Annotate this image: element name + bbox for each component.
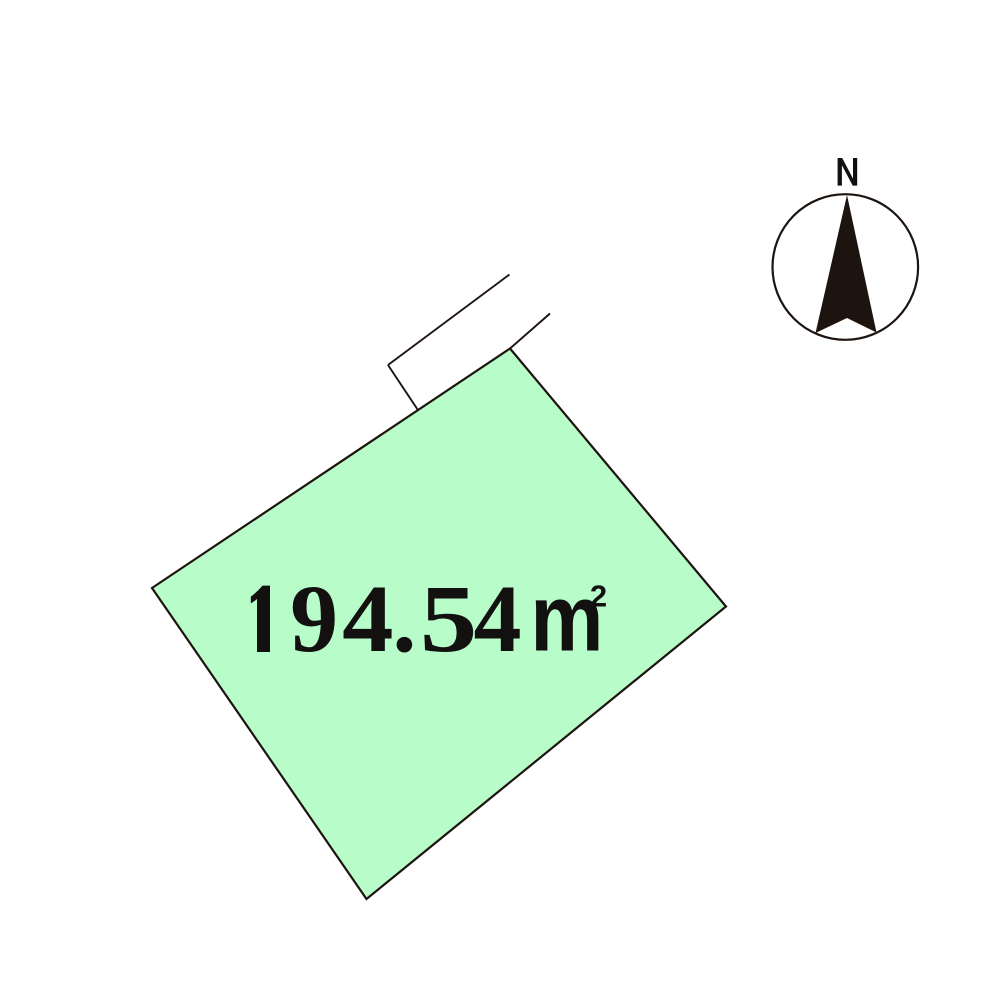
svg-text:4: 4 (474, 565, 522, 672)
svg-text:4: 4 (342, 565, 393, 672)
svg-text:.: . (392, 565, 416, 672)
svg-text:2: 2 (590, 578, 607, 613)
svg-text:5: 5 (420, 566, 478, 672)
svg-text:9: 9 (290, 565, 338, 672)
